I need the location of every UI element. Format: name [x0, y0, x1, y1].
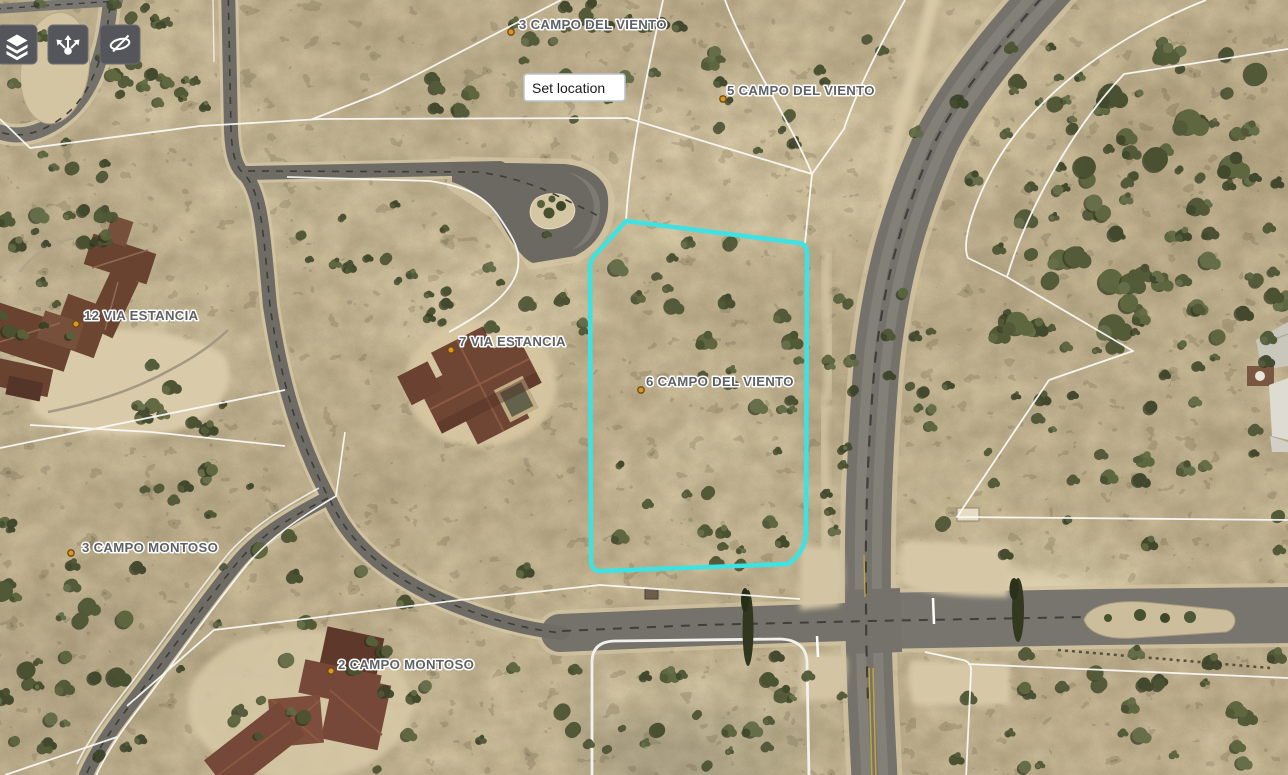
svg-text:Set location: Set location	[532, 80, 605, 96]
svg-text:12 VIA ESTANCIA: 12 VIA ESTANCIA	[84, 308, 199, 323]
svg-text:2 CAMPO MONTOSO: 2 CAMPO MONTOSO	[338, 657, 474, 672]
svg-text:3 CAMPO MONTOSO: 3 CAMPO MONTOSO	[82, 540, 218, 555]
svg-text:5 CAMPO DEL VIENTO: 5 CAMPO DEL VIENTO	[727, 83, 875, 98]
svg-text:3 CAMPO DEL VIENTO: 3 CAMPO DEL VIENTO	[519, 17, 667, 32]
svg-text:6 CAMPO DEL VIENTO: 6 CAMPO DEL VIENTO	[646, 374, 794, 389]
svg-text:7 VIA ESTANCIA: 7 VIA ESTANCIA	[459, 334, 566, 349]
